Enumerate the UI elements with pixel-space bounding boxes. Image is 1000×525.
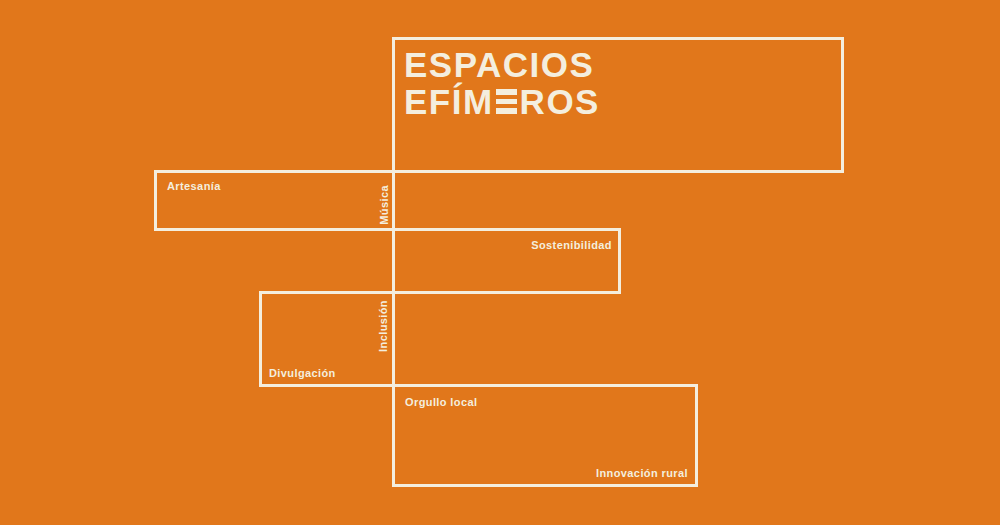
divulgacion-label: Divulgación [269, 367, 336, 379]
poster-canvas: ESPACIOS EFÍMROS Artesanía Música Sosten… [0, 0, 1000, 525]
divulgacion-box: Inclusión Divulgación [259, 291, 395, 387]
title-box: ESPACIOS EFÍMROS [392, 37, 844, 173]
artesania-box: Artesanía Música [154, 170, 395, 231]
sostenibilidad-label: Sostenibilidad [531, 239, 612, 251]
sostenibilidad-box: Sostenibilidad [392, 228, 621, 294]
innovacion-rural-label: Innovación rural [596, 467, 688, 479]
inclusion-label: Inclusión [377, 300, 389, 352]
title-line-2-pre: EFÍM [404, 82, 494, 121]
orgullo-local-label: Orgullo local [405, 396, 477, 408]
title-line-2: EFÍMROS [404, 83, 841, 120]
artesania-label: Artesanía [167, 180, 221, 192]
title-line-1: ESPACIOS [404, 46, 841, 83]
orgullo-local-box: Orgullo local Innovación rural [392, 384, 698, 487]
title-line-2-post: ROS [520, 82, 600, 121]
poster-title: ESPACIOS EFÍMROS [395, 40, 841, 120]
musica-label: Música [378, 185, 390, 225]
stylized-e-icon [496, 89, 517, 114]
